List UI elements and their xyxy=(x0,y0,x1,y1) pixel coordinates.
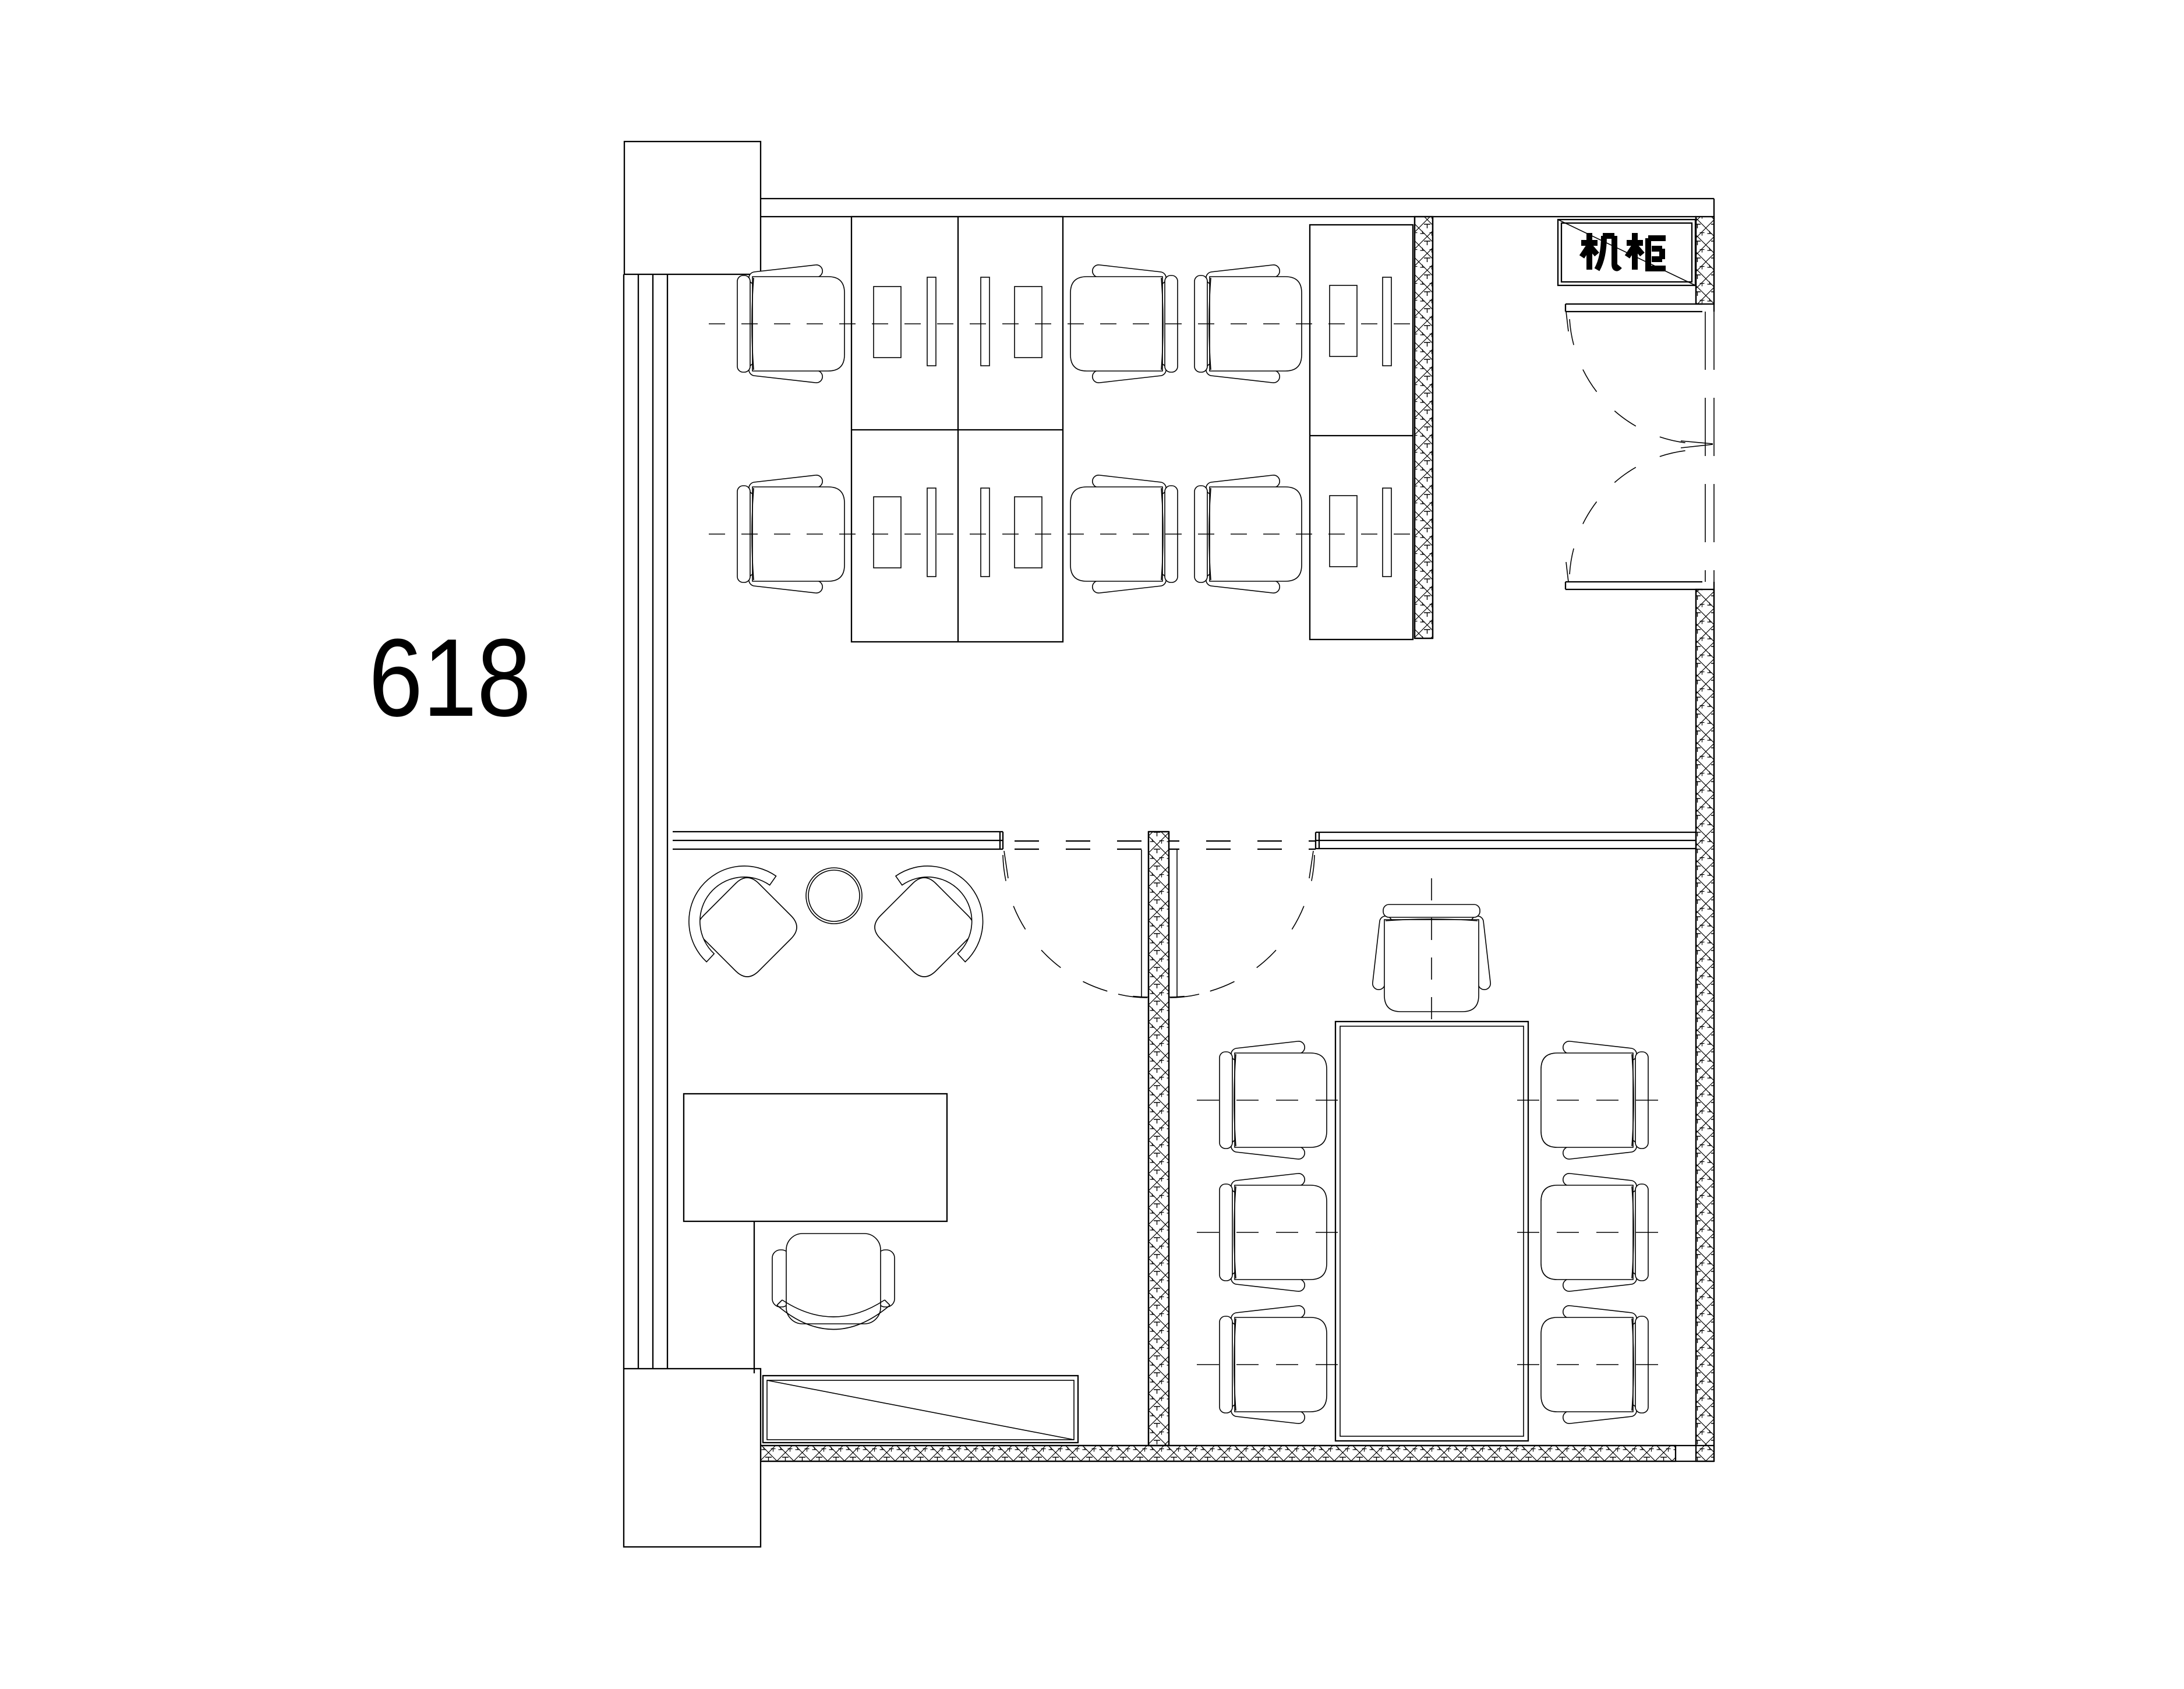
svg-text:618: 618 xyxy=(369,616,531,739)
